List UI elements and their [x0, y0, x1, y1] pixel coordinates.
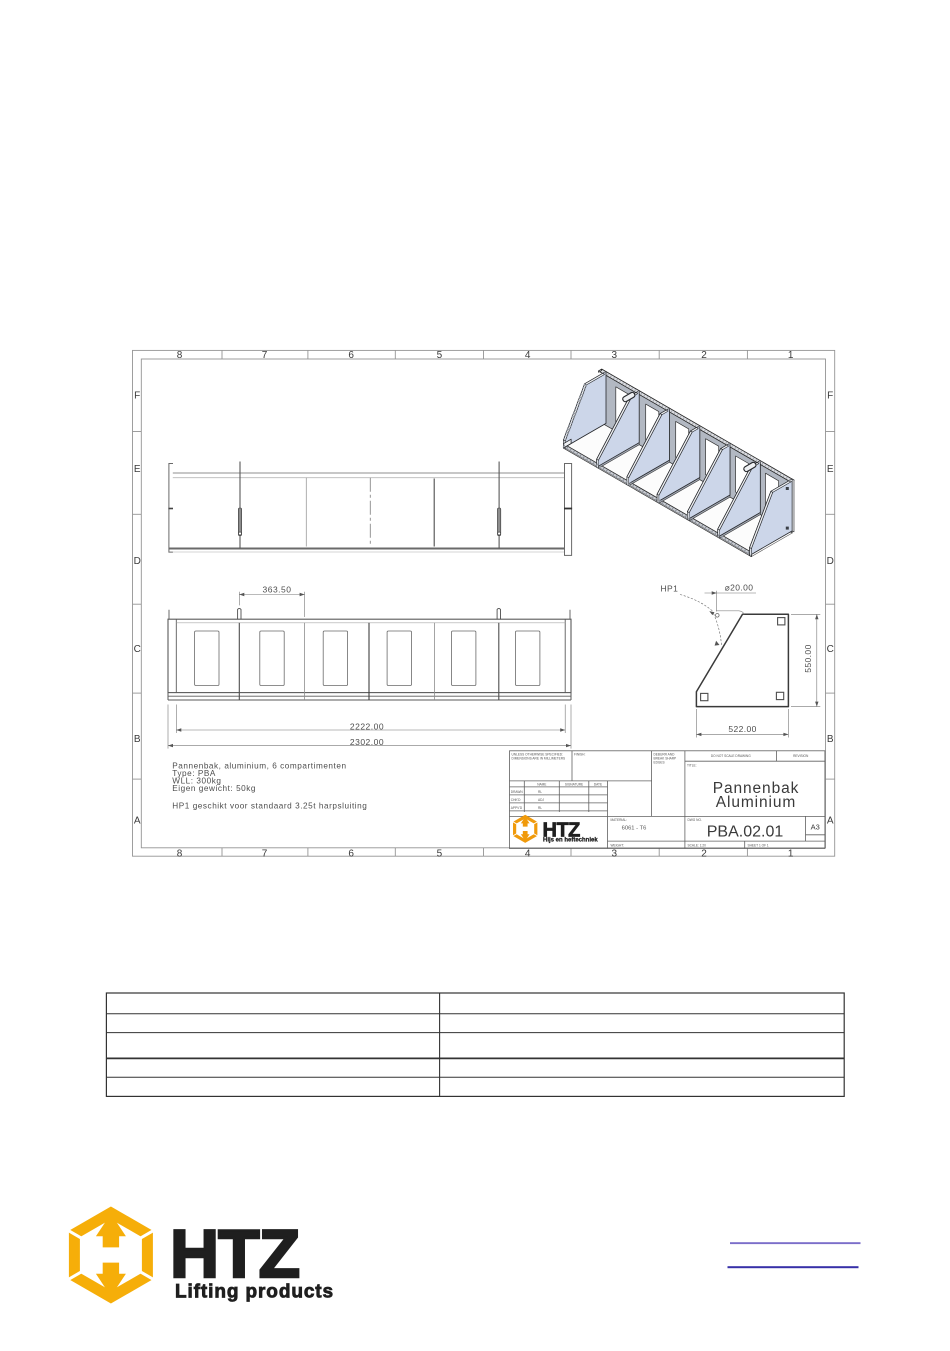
svg-text:550.00: 550.00 — [803, 644, 813, 672]
svg-text:REVISION: REVISION — [793, 754, 809, 758]
svg-text:⌀20.00: ⌀20.00 — [725, 582, 754, 592]
svg-text:SCALE: 1:20: SCALE: 1:20 — [688, 844, 707, 848]
svg-text:EDGES: EDGES — [654, 761, 665, 765]
svg-text:SIGNATURE: SIGNATURE — [565, 782, 583, 786]
svg-text:ADJ: ADJ — [538, 798, 544, 802]
svg-text:2: 2 — [701, 849, 707, 860]
svg-text:B: B — [134, 734, 141, 745]
svg-text:HP1 geschikt voor standaard 3.: HP1 geschikt voor standaard 3.25t harpsl… — [172, 801, 367, 810]
svg-text:7: 7 — [262, 350, 268, 361]
svg-text:8: 8 — [177, 849, 183, 860]
svg-text:C: C — [134, 644, 141, 655]
svg-text:8: 8 — [177, 350, 183, 361]
svg-text:3: 3 — [612, 350, 618, 361]
svg-text:A3: A3 — [811, 823, 820, 832]
svg-text:A: A — [827, 816, 834, 827]
svg-text:Hijs en heftechniek: Hijs en heftechniek — [543, 838, 598, 844]
svg-text:RL: RL — [538, 806, 542, 810]
svg-text:E: E — [827, 464, 834, 475]
svg-text:6: 6 — [348, 849, 354, 860]
svg-text:MATERIAL:: MATERIAL: — [611, 818, 628, 822]
svg-text:D: D — [134, 556, 141, 567]
svg-text:7: 7 — [262, 849, 268, 860]
svg-text:4: 4 — [525, 350, 531, 361]
svg-text:2222.00: 2222.00 — [350, 721, 384, 731]
svg-text:WEIGHT:: WEIGHT: — [611, 844, 624, 848]
svg-text:PBA.02.01: PBA.02.01 — [707, 824, 784, 841]
svg-text:E: E — [134, 464, 141, 475]
svg-text:Eigen gewicht: 50kg: Eigen gewicht: 50kg — [172, 784, 256, 793]
svg-text:DIMENSIONS ARE IN MILLIMETERS: DIMENSIONS ARE IN MILLIMETERS — [512, 757, 566, 761]
svg-text:HTZ: HTZ — [170, 1216, 299, 1292]
svg-text:HP1: HP1 — [661, 584, 679, 594]
svg-text:F: F — [134, 390, 140, 401]
svg-text:APPV'D: APPV'D — [511, 806, 523, 810]
svg-text:Lifting products: Lifting products — [175, 1282, 334, 1303]
svg-text:SHEET 1 OF 1: SHEET 1 OF 1 — [748, 844, 769, 848]
svg-text:RL: RL — [538, 790, 542, 794]
svg-text:NAME: NAME — [537, 782, 546, 786]
svg-text:FINISH:: FINISH: — [574, 753, 585, 757]
svg-text:2: 2 — [701, 350, 707, 361]
svg-text:DRAWN: DRAWN — [511, 790, 524, 794]
svg-text:3: 3 — [612, 849, 618, 860]
svg-text:2302.00: 2302.00 — [350, 737, 384, 747]
svg-text:C: C — [827, 644, 834, 655]
svg-text:F: F — [827, 390, 833, 401]
svg-text:DO NOT SCALE DRAWING: DO NOT SCALE DRAWING — [711, 754, 751, 758]
svg-text:D: D — [827, 556, 834, 567]
svg-text:1: 1 — [788, 849, 794, 860]
svg-text:Aluminium: Aluminium — [716, 794, 796, 811]
svg-text:A: A — [134, 816, 141, 827]
svg-text:1: 1 — [788, 350, 794, 361]
svg-text:522.00: 522.00 — [728, 724, 756, 734]
svg-text:5: 5 — [437, 849, 443, 860]
svg-text:5: 5 — [437, 350, 443, 361]
svg-text:DATE: DATE — [594, 782, 602, 786]
svg-text:6061 - T6: 6061 - T6 — [622, 826, 647, 832]
svg-text:4: 4 — [525, 849, 531, 860]
svg-text:DWG NO.: DWG NO. — [688, 818, 702, 822]
svg-text:363.50: 363.50 — [263, 584, 292, 594]
svg-text:B: B — [827, 734, 834, 745]
svg-text:CHK'D: CHK'D — [511, 798, 521, 802]
svg-text:6: 6 — [348, 350, 354, 361]
svg-text:TITLE:: TITLE: — [687, 764, 697, 768]
